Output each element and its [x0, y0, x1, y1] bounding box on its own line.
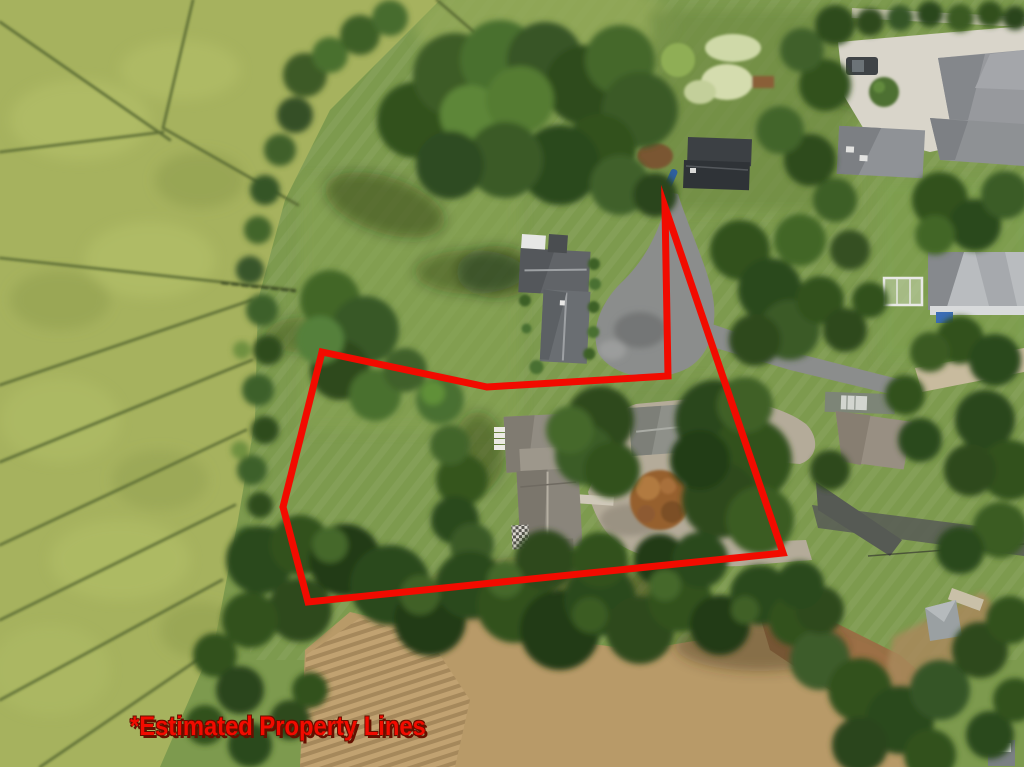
courtyard-island-hedge [869, 77, 899, 107]
aerial-photo-canvas [0, 0, 1024, 767]
pergola [884, 278, 922, 305]
estimated-property-lines-label: *Estimated Property Lines [130, 711, 426, 742]
aerial-photo: *Estimated Property Lines [0, 0, 1024, 767]
parked-car [846, 57, 878, 75]
guest-house-roof [837, 126, 925, 178]
